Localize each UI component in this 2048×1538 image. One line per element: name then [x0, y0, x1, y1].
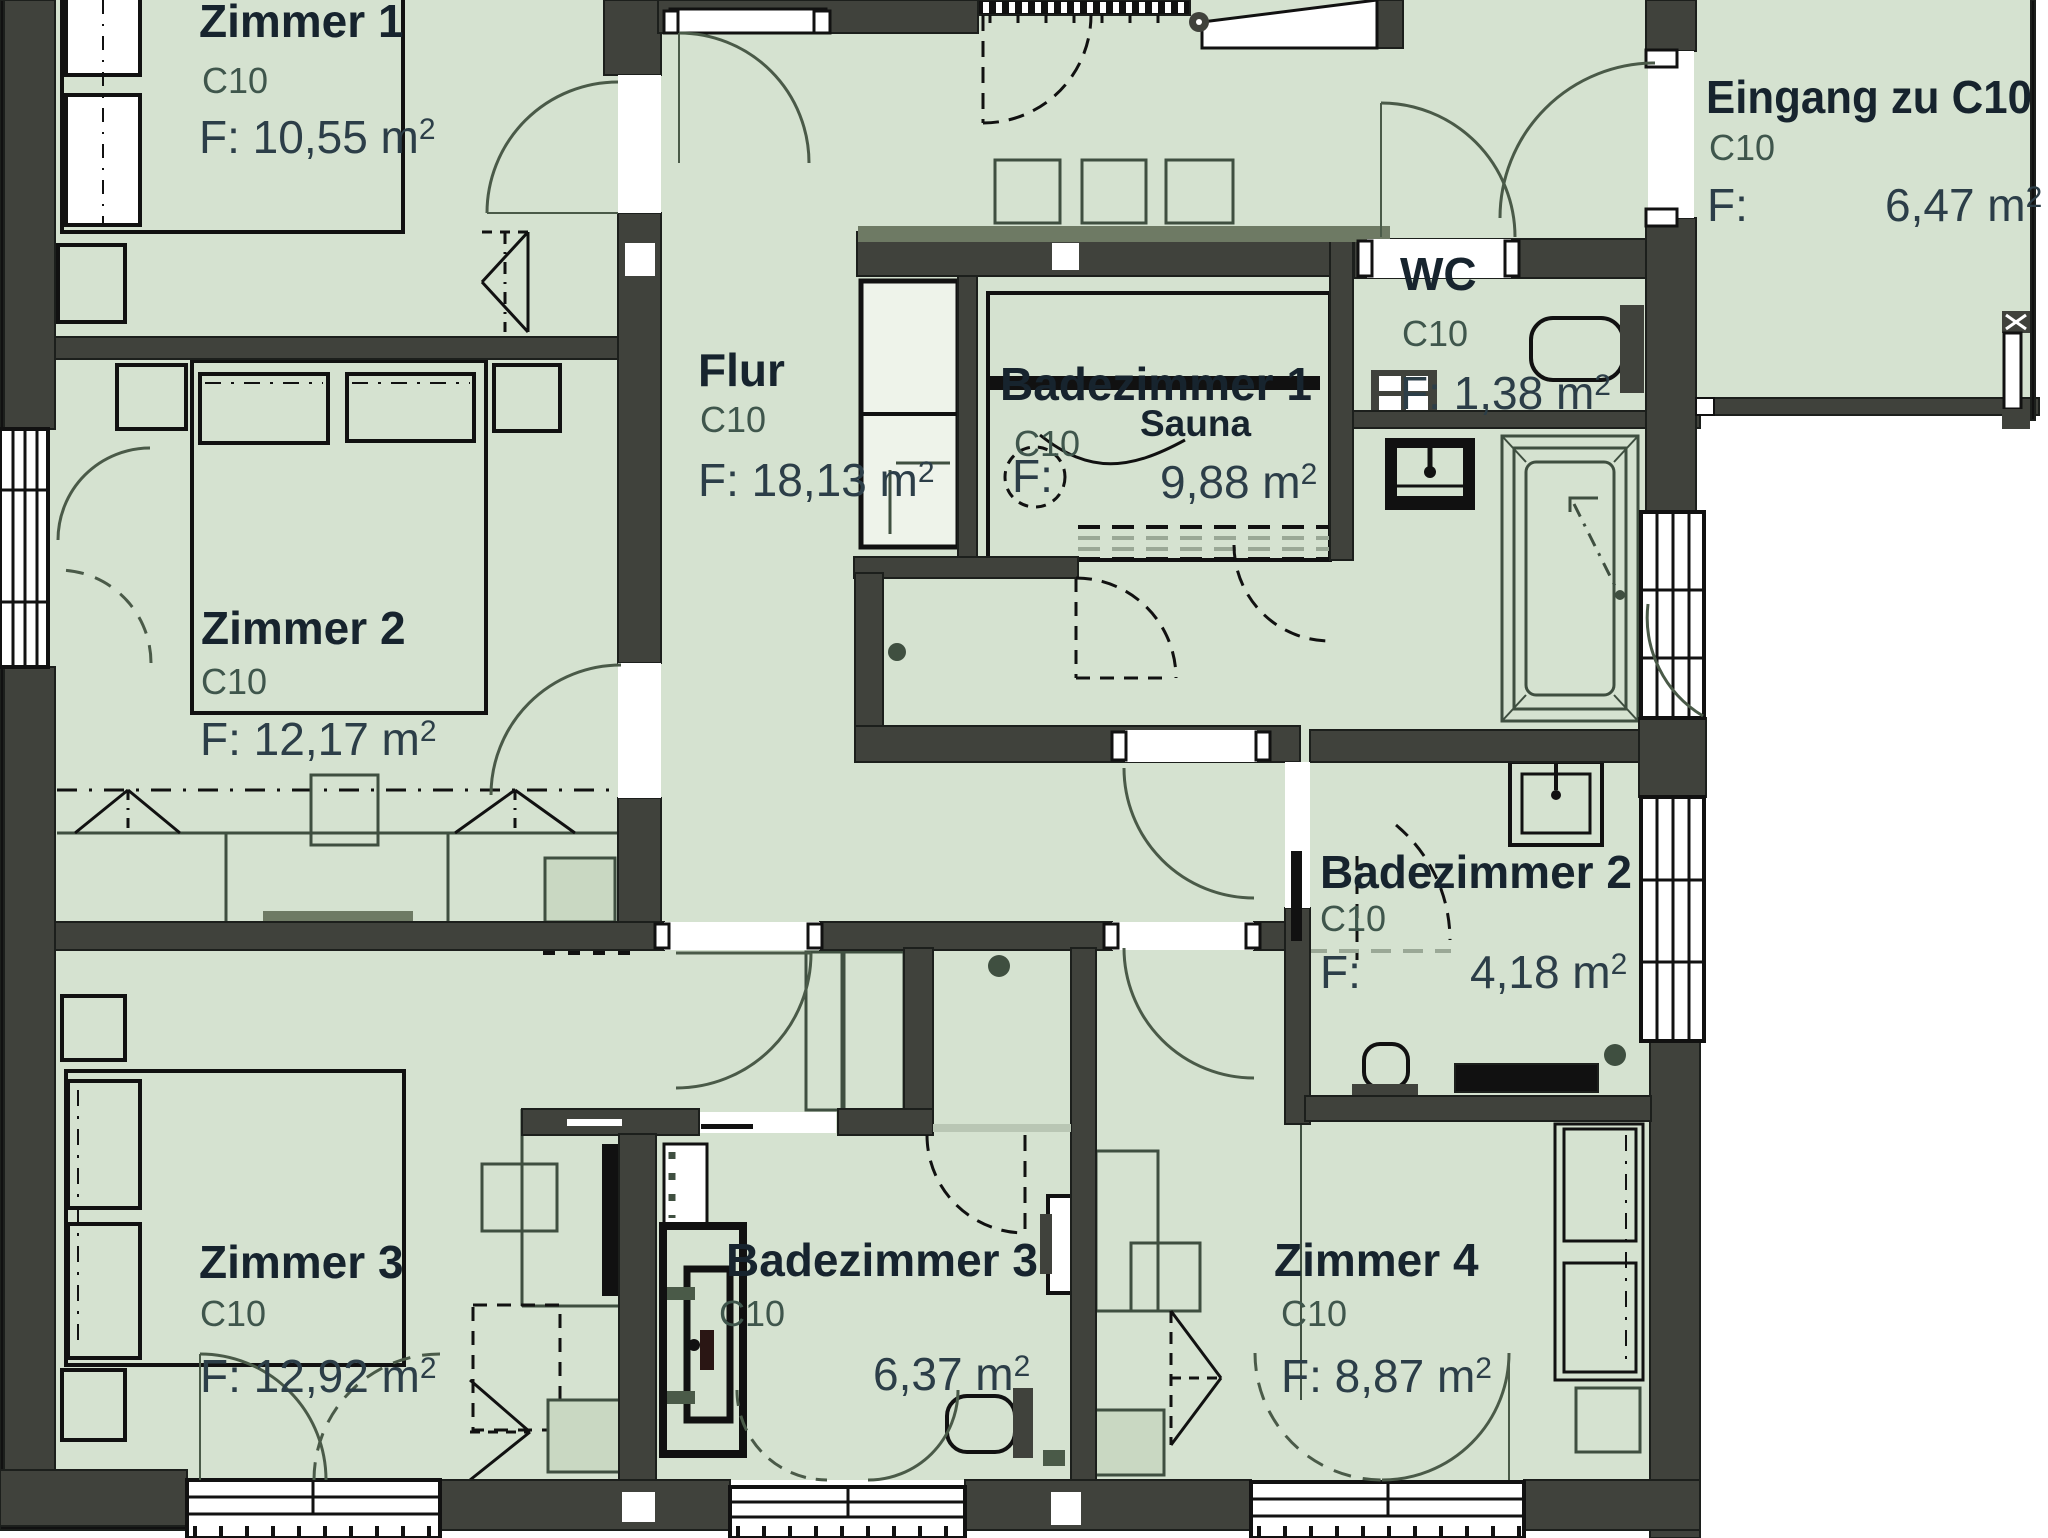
svg-text:WC: WC [1400, 248, 1477, 300]
svg-text:C10: C10 [1281, 1293, 1347, 1334]
svg-text:C10: C10 [1320, 898, 1386, 939]
svg-text:F:: F: [1707, 179, 1748, 231]
svg-text:Badezimmer 2: Badezimmer 2 [1320, 846, 1632, 898]
svg-text:Badezimmer 3: Badezimmer 3 [726, 1234, 1038, 1286]
svg-text:C10: C10 [719, 1293, 785, 1334]
svg-text:F:: F: [1320, 946, 1361, 998]
svg-text:4,18 m2: 4,18 m2 [1470, 946, 1627, 998]
svg-text:F: 18,13 m2: F: 18,13 m2 [698, 454, 935, 506]
svg-text:C10: C10 [201, 661, 267, 702]
svg-text:C10: C10 [700, 399, 766, 440]
svg-text:F:: F: [1012, 450, 1053, 502]
svg-text:F: 12,17 m2: F: 12,17 m2 [200, 713, 437, 765]
svg-text:C10: C10 [202, 60, 268, 101]
svg-text:Sauna: Sauna [1140, 403, 1251, 444]
svg-text:Zimmer 1: Zimmer 1 [199, 0, 404, 47]
svg-text:F: 10,55 m2: F: 10,55 m2 [199, 111, 436, 163]
svg-text:C10: C10 [200, 1293, 266, 1334]
svg-text:Flur: Flur [698, 344, 785, 396]
svg-text:Zimmer 4: Zimmer 4 [1274, 1234, 1479, 1286]
svg-text:C10: C10 [1709, 127, 1775, 168]
svg-text:F: 8,87 m2: F: 8,87 m2 [1281, 1350, 1492, 1402]
svg-text:F: 1,38 m2: F: 1,38 m2 [1400, 367, 1611, 419]
svg-text:Eingang zu C10: Eingang zu C10 [1706, 71, 2032, 123]
svg-text:Zimmer 2: Zimmer 2 [201, 602, 406, 654]
svg-text:6,47 m2: 6,47 m2 [1885, 179, 2042, 231]
svg-text:9,88 m2: 9,88 m2 [1160, 456, 1317, 508]
svg-text:F: 12,92 m2: F: 12,92 m2 [200, 1350, 437, 1402]
svg-text:C10: C10 [1402, 313, 1468, 354]
svg-text:6,37 m2: 6,37 m2 [873, 1348, 1030, 1400]
svg-text:Zimmer 3: Zimmer 3 [199, 1236, 404, 1288]
